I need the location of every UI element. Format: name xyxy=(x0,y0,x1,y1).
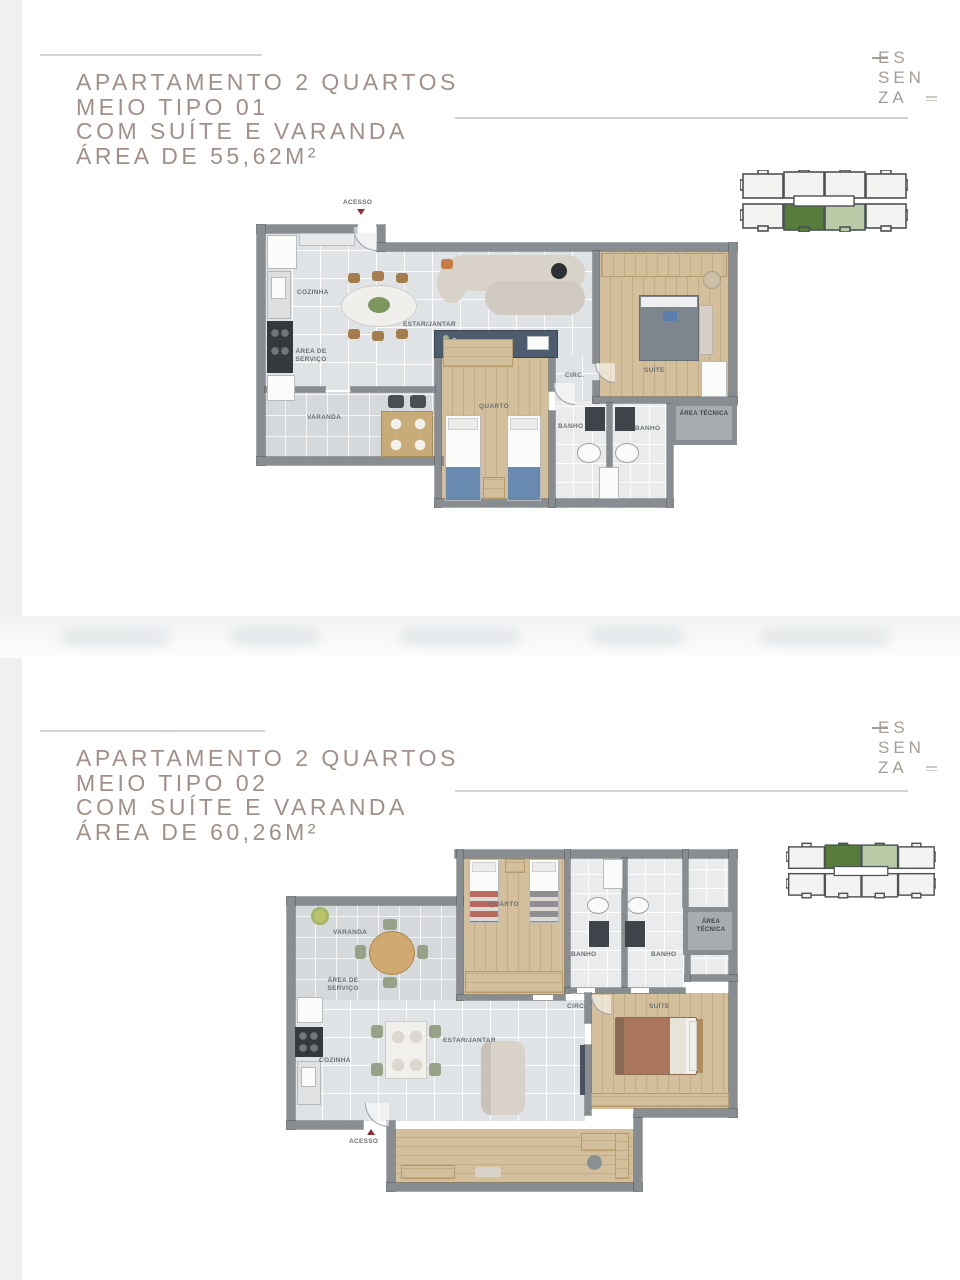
wall xyxy=(683,850,688,907)
bedroom-wardrobe xyxy=(465,971,563,993)
dining-chair xyxy=(348,329,360,339)
label-acesso: ACESSO xyxy=(349,1138,378,1146)
dining-chair xyxy=(396,273,408,283)
wall xyxy=(257,225,265,465)
building-key-plan-1 xyxy=(740,170,908,232)
title-rule-1 xyxy=(40,54,262,56)
bathroom-vanity xyxy=(589,921,609,947)
sofa-back xyxy=(481,1041,491,1115)
watermark-blob xyxy=(400,628,520,646)
bed-pillow xyxy=(448,418,478,430)
essenza-logo: ES SEN ZA xyxy=(878,48,948,108)
table-centerpiece xyxy=(368,297,390,313)
wall xyxy=(685,975,737,981)
wall xyxy=(685,953,690,981)
label-banho: BANHO xyxy=(635,425,660,433)
nightstand xyxy=(483,477,505,499)
label-varanda: VARANDA xyxy=(307,414,341,422)
watermark-band xyxy=(0,616,960,658)
wall xyxy=(435,333,441,507)
wall xyxy=(257,225,357,233)
dining-chair xyxy=(372,331,384,341)
logo-line-es: ES xyxy=(878,48,948,68)
bed-blanket-blue xyxy=(508,467,540,500)
logo-submark xyxy=(926,94,937,103)
label-varanda: VARANDA xyxy=(333,929,367,937)
plan2-title: APARTAMENTO 2 QUARTOS MEIO TIPO 02 COM S… xyxy=(76,746,459,844)
kitchen-sink xyxy=(301,1067,316,1087)
balcony-chair xyxy=(383,977,397,988)
toilet xyxy=(627,897,649,914)
dining-table xyxy=(385,1021,427,1079)
stove xyxy=(295,1027,323,1057)
balcony-chair xyxy=(410,395,426,408)
stove xyxy=(267,321,293,373)
logo-line-sen: SEN xyxy=(878,68,948,88)
header-rule-1 xyxy=(455,117,908,119)
balcony-round-table xyxy=(369,931,415,975)
washer xyxy=(267,375,295,401)
wall xyxy=(729,243,737,405)
plan1-title-line1: APARTAMENTO 2 QUARTOS xyxy=(76,70,459,95)
toilet xyxy=(577,443,601,463)
nightstand xyxy=(505,859,525,873)
plan2-title-line2: MEIO TIPO 02 xyxy=(76,771,459,796)
dining-chair xyxy=(348,273,360,283)
bathroom-vanity xyxy=(625,921,645,947)
wall xyxy=(455,850,737,858)
wall xyxy=(565,850,570,993)
wall xyxy=(377,243,737,251)
nook-deco xyxy=(475,1167,501,1177)
corridor-floor xyxy=(688,955,729,977)
wall xyxy=(457,850,463,1000)
dining-chair xyxy=(372,271,384,281)
balcony-table xyxy=(381,411,433,457)
wall xyxy=(287,1121,363,1129)
label-area-servico: ÁREA DE SERVIÇO xyxy=(325,977,361,992)
wall xyxy=(257,457,443,465)
sofa-chaise xyxy=(485,281,585,315)
bed-pillow xyxy=(510,418,538,430)
title-rule-2 xyxy=(40,730,265,732)
label-suite: SUÍTE xyxy=(644,367,665,375)
door-gap xyxy=(631,988,649,993)
dining-chair xyxy=(429,1063,441,1076)
kitchen-counter-top xyxy=(299,233,355,246)
wall xyxy=(351,387,435,392)
logo-submark xyxy=(926,764,937,773)
nook-shelf xyxy=(401,1165,455,1179)
logo-dash xyxy=(872,727,888,729)
suite-pouf xyxy=(703,271,721,289)
acesso-marker xyxy=(357,209,365,215)
label-area-tecnica: ÁREA TÉCNICA xyxy=(691,919,731,934)
balcony-chair xyxy=(388,395,404,408)
building-key-plan-2 xyxy=(786,840,936,902)
plan1-title: APARTAMENTO 2 QUARTOS MEIO TIPO 01 COM S… xyxy=(76,70,459,168)
label-circ: CIRC. xyxy=(565,372,584,380)
plan2-title-line3: COM SUÍTE E VARANDA xyxy=(76,795,459,820)
logo-line-za: ZA xyxy=(878,88,948,108)
essenza-logo-2: ES SEN ZA xyxy=(878,718,948,778)
label-cozinha: COZINHA xyxy=(297,289,329,297)
dining-chair xyxy=(396,329,408,339)
wall xyxy=(634,1115,642,1191)
acesso-marker xyxy=(367,1129,375,1135)
plan1-title-line4: ÁREA DE 55,62M² xyxy=(76,144,459,169)
label-cozinha: COZINHA xyxy=(319,1057,351,1065)
floor-plan-tipo-01: ACESSO COZINHA ESTAR/JANTAR ÁREA DE SERV… xyxy=(255,215,740,515)
desk-chair xyxy=(587,1155,602,1170)
suite-pillows xyxy=(689,1021,697,1071)
desk-return xyxy=(615,1133,629,1179)
wall xyxy=(387,1121,395,1191)
watermark-blob xyxy=(230,626,320,646)
dining-chair xyxy=(371,1025,383,1038)
wall xyxy=(729,850,737,1117)
shower xyxy=(599,467,619,499)
wall xyxy=(387,1183,642,1191)
balcony-chair xyxy=(417,945,428,959)
watermark-blob xyxy=(590,626,685,646)
plan2-title-line1: APARTAMENTO 2 QUARTOS xyxy=(76,746,459,771)
logo-line-es: ES xyxy=(878,718,948,738)
suite-pillows xyxy=(641,297,697,307)
bathroom-vanity xyxy=(585,407,605,431)
shower xyxy=(603,859,623,889)
wall xyxy=(549,411,555,507)
washer xyxy=(297,997,323,1023)
wall xyxy=(593,251,599,363)
fridge xyxy=(267,235,297,269)
label-quarto: QUARTO xyxy=(489,901,519,909)
watermark-blob xyxy=(60,628,170,646)
corner-floor xyxy=(688,858,729,907)
kitchen-sink xyxy=(271,277,286,299)
balcony-chair xyxy=(383,919,397,930)
brochure-page: APARTAMENTO 2 QUARTOS MEIO TIPO 01 COM S… xyxy=(0,0,960,1280)
label-quarto: QUARTO xyxy=(479,403,509,411)
floor-plan-tipo-02: VARANDA QUARTO BANHO BANHO ÁREA TÉCNICA … xyxy=(285,845,745,1195)
suite-bath-fixture xyxy=(701,361,727,397)
bed-pillow xyxy=(472,862,496,872)
suite-bench xyxy=(699,305,713,355)
label-banho: BANHO xyxy=(571,951,596,959)
door-gap xyxy=(533,995,553,1000)
bathroom-vanity xyxy=(615,407,635,431)
sofa-pillow xyxy=(441,259,453,269)
wall xyxy=(287,897,295,1129)
dining-chair xyxy=(371,1063,383,1076)
header-rule-2 xyxy=(455,790,908,792)
plant xyxy=(311,907,329,925)
dining-chair xyxy=(429,1025,441,1038)
plan1-title-line3: COM SUÍTE E VARANDA xyxy=(76,119,459,144)
suite-bed xyxy=(615,1017,697,1075)
label-suite: SUÍTE xyxy=(649,1003,670,1011)
logo-dash xyxy=(872,57,888,59)
plan2-title-line4: ÁREA DE 60,26M² xyxy=(76,820,459,845)
tv xyxy=(527,336,549,350)
tv-panel xyxy=(580,1045,585,1095)
suite-headboard xyxy=(697,1019,703,1073)
entry-door-arc xyxy=(365,1103,389,1127)
sofa-arm xyxy=(437,263,467,303)
toilet xyxy=(587,897,609,914)
label-area-tecnica: ÁREA TÉCNICA xyxy=(679,411,729,419)
label-acesso: ACESSO xyxy=(343,199,372,207)
bedroom-wardrobe xyxy=(443,339,513,367)
label-area-servico: ÁREA DE SERVIÇO xyxy=(293,348,329,363)
label-estar-jantar: ESTAR/JANTAR xyxy=(443,1037,496,1045)
bed-blanket xyxy=(530,891,558,922)
logo-line-za: ZA xyxy=(878,758,948,778)
bed-pillow xyxy=(532,862,556,872)
watermark-blob xyxy=(760,628,890,646)
label-banho: BANHO xyxy=(651,951,676,959)
suite-wardrobe xyxy=(591,1093,729,1107)
coffee-table xyxy=(551,263,567,279)
wall xyxy=(634,1109,737,1117)
plan1-title-line2: MEIO TIPO 01 xyxy=(76,95,459,120)
wall xyxy=(287,897,463,905)
label-circ: CIRC. xyxy=(567,1003,586,1011)
technical-area-box xyxy=(671,401,737,445)
balcony-chair xyxy=(355,945,366,959)
suite-accent-pillow xyxy=(663,311,677,321)
bed-blanket-blue xyxy=(446,467,480,500)
label-banho: BANHO xyxy=(558,423,583,431)
label-estar-jantar: ESTAR/JANTAR xyxy=(403,321,456,329)
toilet xyxy=(615,443,639,463)
logo-line-sen: SEN xyxy=(878,738,948,758)
